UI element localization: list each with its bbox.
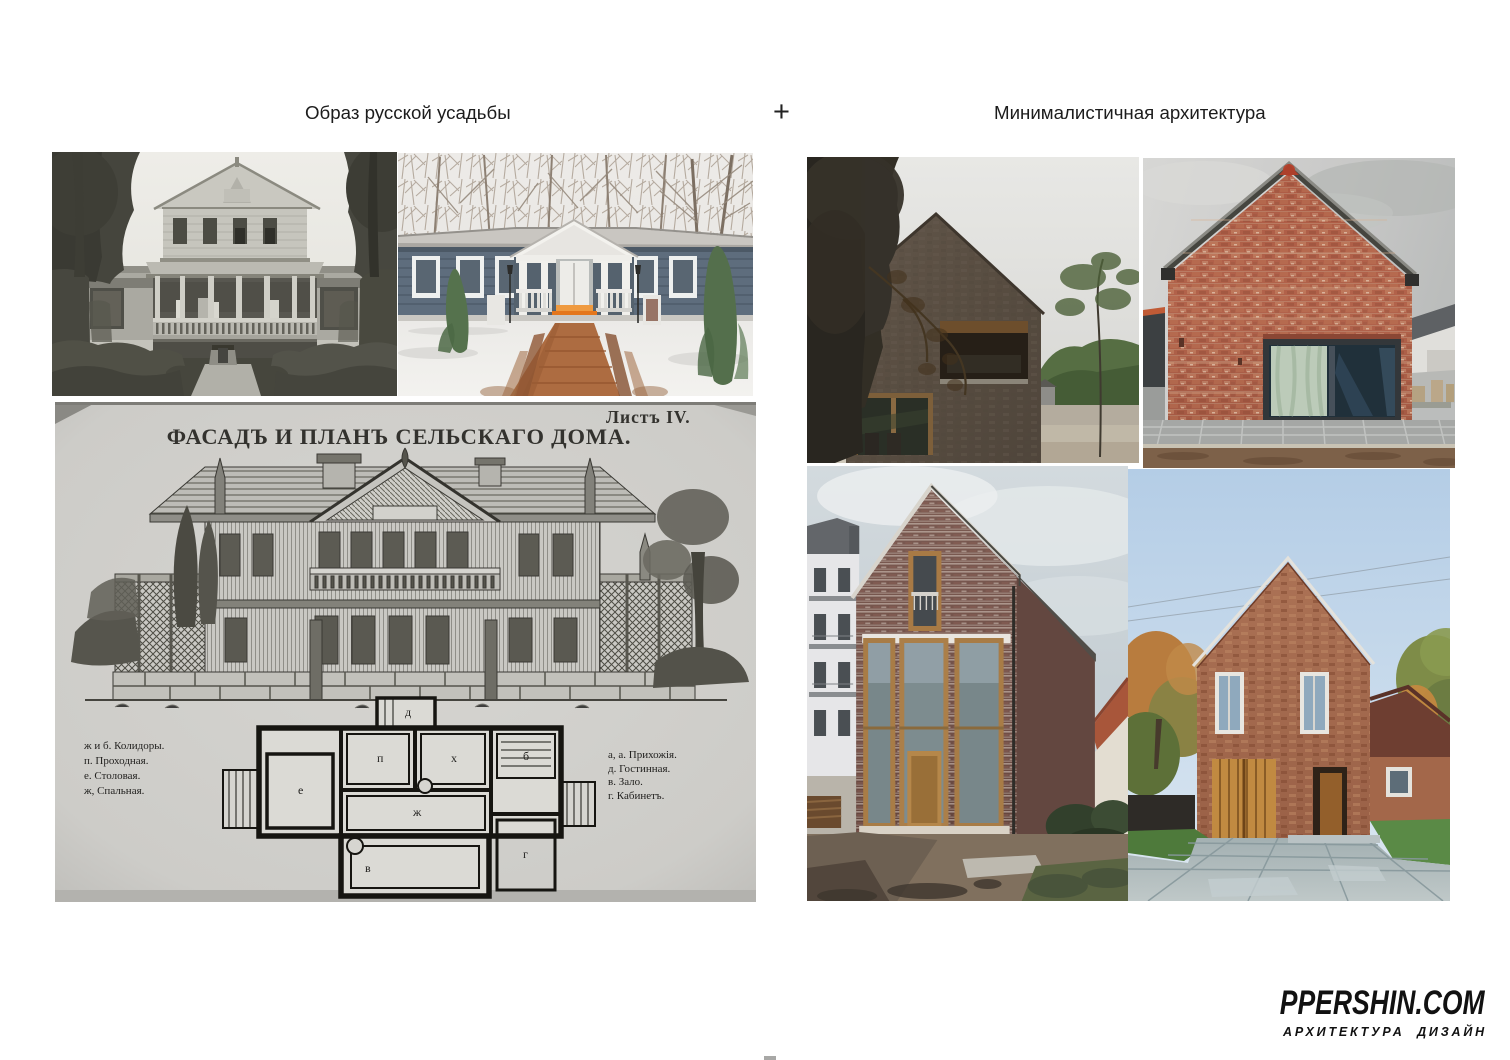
svg-text:д: д — [405, 705, 411, 719]
svg-text:ж: ж — [412, 805, 422, 819]
svg-text:г. Кабинетъ.: г. Кабинетъ. — [608, 790, 665, 802]
svg-text:а, а. Прихожія.: а, а. Прихожія. — [608, 749, 677, 761]
svg-text:в. Зало.: в. Зало. — [608, 776, 643, 788]
svg-text:Листъ IV.: Листъ IV. — [606, 407, 691, 427]
svg-text:в: в — [365, 861, 371, 875]
svg-text:п: п — [377, 751, 384, 765]
svg-text:д. Гостинная.: д. Гостинная. — [608, 763, 671, 775]
svg-text:е: е — [298, 783, 303, 797]
svg-text:ж, Спальная.: ж, Спальная. — [83, 785, 145, 797]
svg-text:х: х — [451, 751, 457, 765]
svg-text:б: б — [523, 749, 529, 763]
svg-text:ж и б. Колидоры.: ж и б. Колидоры. — [83, 740, 165, 752]
svg-text:ФАСАДЪ И ПЛАНЪ СЕЛЬСКАГО ДОМА.: ФАСАДЪ И ПЛАНЪ СЕЛЬСКАГО ДОМА. — [167, 424, 632, 449]
svg-text:е. Столовая.: е. Столовая. — [84, 770, 141, 782]
svg-text:г: г — [523, 847, 528, 861]
svg-text:п. Проходная.: п. Проходная. — [84, 755, 149, 767]
